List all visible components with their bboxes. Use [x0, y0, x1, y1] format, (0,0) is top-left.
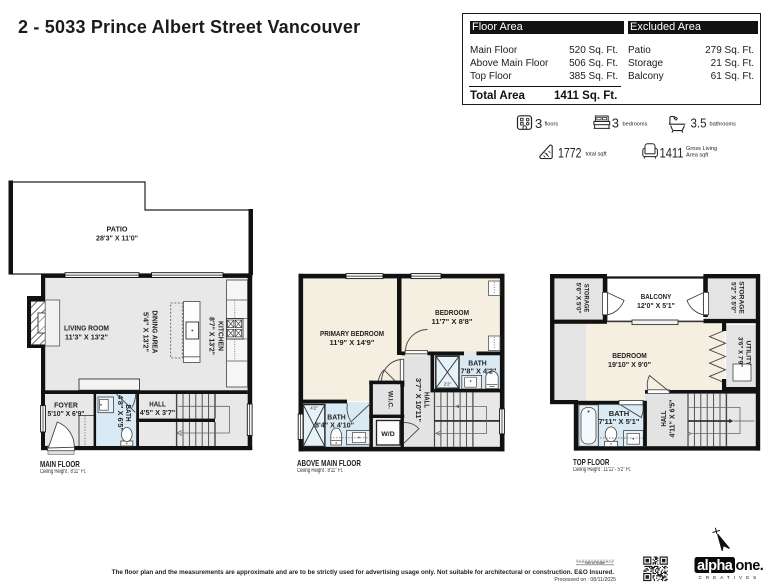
svg-text:11'7" X 8'8": 11'7" X 8'8" [432, 317, 473, 326]
svg-text:BEDROOM: BEDROOM [612, 351, 647, 360]
svg-text:8'7" X 13'2": 8'7" X 13'2" [208, 317, 217, 355]
svg-text:Gross Living: Gross Living [686, 146, 717, 152]
svg-text:28'3" X 11'0": 28'3" X 11'0" [96, 236, 138, 243]
svg-text:UTILITY: UTILITY [745, 341, 752, 367]
svg-text:BEDROOM: BEDROOM [435, 308, 469, 317]
svg-text:2'2": 2'2" [444, 382, 452, 387]
svg-text:W.I.C.: W.I.C. [387, 391, 394, 409]
svg-text:HALL: HALL [423, 392, 430, 409]
svg-text:PRIMARY BEDROOM: PRIMARY BEDROOM [320, 329, 384, 338]
svg-text:4'5" X 3'7": 4'5" X 3'7" [140, 410, 176, 417]
svg-text:LIVING ROOM: LIVING ROOM [64, 324, 109, 333]
svg-text:alpha: alpha [697, 558, 734, 574]
svg-text:total sqft: total sqft [586, 152, 608, 158]
svg-text:STORAGE: STORAGE [583, 284, 590, 313]
svg-text:DINING AREA: DINING AREA [151, 311, 160, 355]
svg-text:4'8" X 6'5": 4'8" X 6'5" [116, 395, 123, 431]
svg-text:BALCONY: BALCONY [641, 292, 672, 301]
svg-text:BATH: BATH [609, 411, 630, 418]
svg-text:5'2" X 5'0": 5'2" X 5'0" [730, 282, 737, 313]
svg-text:PATIO: PATIO [107, 227, 129, 234]
svg-text:4'2": 4'2" [310, 406, 318, 411]
svg-text:BATH: BATH [468, 361, 487, 368]
svg-text:3'6" X 7'9": 3'6" X 7'9" [737, 337, 744, 367]
svg-text:19'10" X 9'0": 19'10" X 9'0" [608, 360, 651, 369]
svg-text:HALL: HALL [149, 402, 166, 409]
svg-text:floors: floors [545, 121, 559, 127]
svg-text:3: 3 [535, 116, 542, 131]
svg-text:W/D: W/D [381, 431, 395, 438]
svg-text:1411: 1411 [660, 146, 684, 161]
svg-text:1772: 1772 [558, 146, 582, 161]
svg-text:7'8" X 4'2": 7'8" X 4'2" [461, 369, 497, 376]
svg-text:11'9" X 14'9": 11'9" X 14'9" [330, 338, 375, 347]
svg-text:3'7" X 10'11": 3'7" X 10'11" [414, 378, 421, 422]
svg-text:CREATIVES: CREATIVES [699, 575, 761, 580]
svg-text:5'4" X 13'2": 5'4" X 13'2" [142, 312, 151, 352]
svg-text:bedrooms: bedrooms [623, 121, 648, 127]
svg-text:5'6" X 5'0": 5'6" X 5'0" [575, 283, 582, 314]
svg-text:bathrooms: bathrooms [710, 121, 737, 127]
svg-text:KITCHEN: KITCHEN [217, 321, 226, 351]
svg-text:3.5: 3.5 [691, 116, 707, 131]
svg-text:12'0" X 5'1": 12'0" X 5'1" [637, 301, 675, 310]
svg-text:Not to Scale: Not to Scale [585, 561, 605, 565]
svg-text:11'3" X 13'2": 11'3" X 13'2" [65, 333, 108, 342]
svg-text:3: 3 [612, 116, 619, 131]
svg-text:Area sqft: Area sqft [686, 153, 709, 159]
svg-text:5'10" X 6'9": 5'10" X 6'9" [48, 411, 85, 418]
svg-text:7'11" X 5'1": 7'11" X 5'1" [599, 419, 640, 426]
svg-text:one.: one. [736, 558, 764, 574]
svg-text:HALL: HALL [661, 410, 668, 427]
svg-text:FOYER: FOYER [54, 403, 78, 410]
svg-text:4'11" X 6'5": 4'11" X 6'5" [670, 400, 677, 438]
svg-text:STORAGE: STORAGE [738, 281, 745, 314]
